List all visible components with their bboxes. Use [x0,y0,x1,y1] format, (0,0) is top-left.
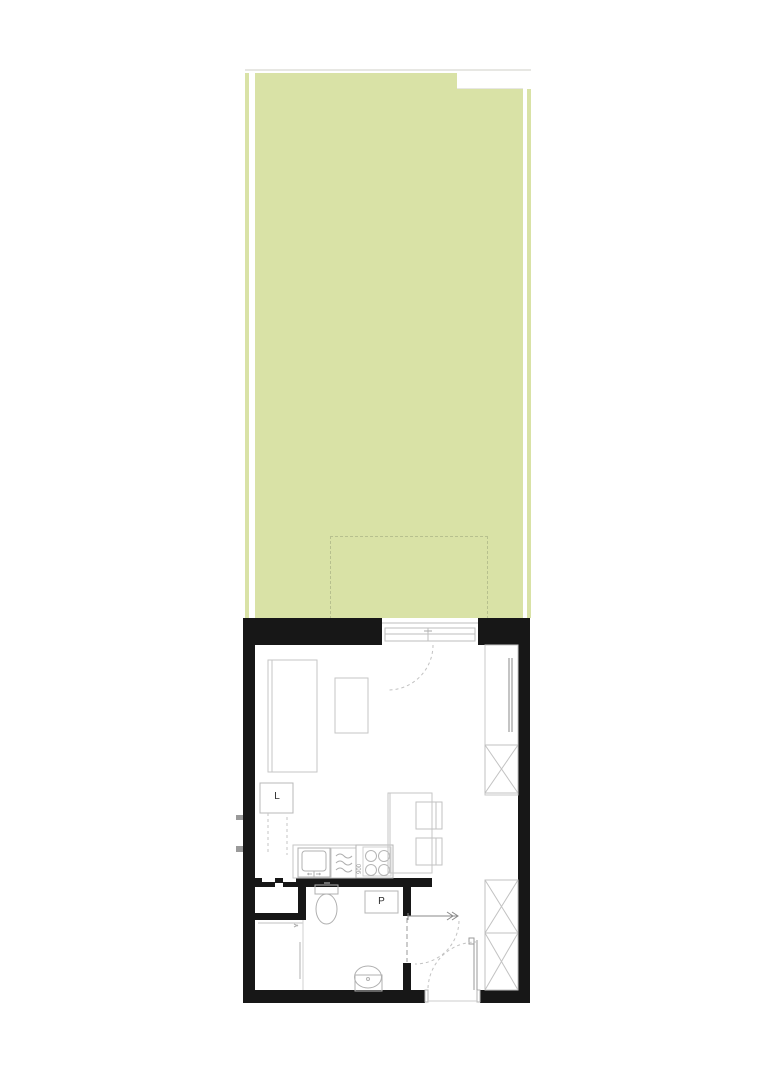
sink-icon [298,848,330,877]
wardrobe-icon [485,745,518,793]
entry-arrow-icon [408,912,458,920]
bed-icon [268,660,317,772]
stool-icon [416,802,442,829]
stool-icon [416,838,442,865]
entry-door-icon [425,938,480,1002]
fridge-label: L [262,792,292,802]
kitchen-cabinet-dashed [268,813,287,855]
bathroom-door-icon [407,918,459,964]
closet-room-lines [258,920,303,990]
washbasin-icon [355,966,383,991]
floorplan-linework [0,0,777,1080]
kitchen-counter [293,845,393,878]
washer-label: P [365,897,398,907]
sliding-doors-icon [485,645,518,795]
balcony-door-icon [382,623,478,690]
stove-dimension-label: 900 [357,864,363,874]
dishwasher-icon [331,848,356,878]
floorplan-canvas: L P 900 [0,0,777,1080]
toilet-icon [315,883,338,924]
wardrobe-hall-icon [485,880,518,990]
island-counter [388,793,432,873]
side-table-icon [335,678,368,733]
